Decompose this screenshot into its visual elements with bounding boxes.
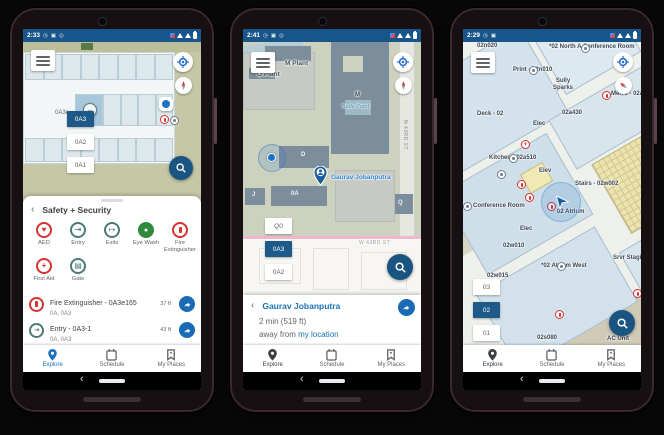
status-time: 2:29 <box>467 32 480 39</box>
sheet-title: Gaurav Jobanputra <box>262 301 340 311</box>
street-label-vertical: N 43RD ST <box>402 120 408 150</box>
battery-icon <box>413 32 417 39</box>
away-text: away from my location <box>259 330 339 339</box>
entry-icon: ⇥ <box>70 222 86 238</box>
speaker-grille <box>83 397 141 402</box>
directions-icon <box>402 303 411 312</box>
home-pill[interactable] <box>99 379 125 383</box>
camera-dot <box>98 17 107 26</box>
compass-button[interactable] <box>615 77 632 94</box>
floor-chip[interactable]: Q0 <box>265 218 292 234</box>
category-aed[interactable]: ♥AED <box>27 222 61 253</box>
pin-label: Gaurav Jobanputra <box>331 174 391 181</box>
eta-text: 2 min (519 ft) <box>259 317 306 326</box>
fire-extinguisher-poi[interactable] <box>160 115 169 124</box>
speaker-grille <box>303 397 361 402</box>
result-row[interactable]: Fire Extinguisher - 0A3e165 0A, 0A3 37 f… <box>29 292 195 316</box>
android-nav: ‹ <box>463 372 641 390</box>
conference-poi[interactable] <box>581 44 590 53</box>
wifi-icon <box>397 33 403 38</box>
category-row-1: ♥AED ⇥Entry ↦Exits ●Eye Wash Fire Exting… <box>27 222 197 253</box>
bookmark-icon <box>166 349 176 361</box>
sheet-title: Safety + Security <box>42 205 111 215</box>
bottom-sheet[interactable]: ‹ Safety + Security ♥AED ⇥Entry ↦Exits ●… <box>23 196 201 345</box>
result-subtitle: 0A, 0A3 <box>50 311 154 317</box>
tab-schedule[interactable]: Schedule <box>522 345 581 372</box>
phone-3: 2:29 ◷ ▣ <box>450 8 654 412</box>
person-pin[interactable] <box>313 166 328 186</box>
status-bar: 2:29 ◷ ▣ <box>463 29 641 42</box>
notification-icon <box>170 33 175 38</box>
map-label: 02a430 <box>562 110 582 116</box>
bottom-nav: Explore Schedule My Places <box>463 345 641 372</box>
print-poi[interactable] <box>529 66 538 75</box>
street-label: W 43RD ST <box>359 240 390 246</box>
map-label: M Plant <box>285 60 308 67</box>
locate-button[interactable] <box>613 52 633 72</box>
floor-chip[interactable]: 01 <box>473 325 500 341</box>
map-pin-icon <box>487 349 498 361</box>
result-title: Fire Extinguisher - 0A3e165 <box>50 300 137 307</box>
result-subtitle: 0A, 0A3 <box>50 337 154 343</box>
search-icon <box>616 317 629 330</box>
map-pin-icon <box>47 349 58 361</box>
camera-dot <box>538 17 547 26</box>
map-label: Srvr Staging <box>613 255 641 261</box>
menu-button[interactable] <box>471 52 495 73</box>
map-label: Elec <box>533 121 545 127</box>
location-icon: ◎ <box>279 33 284 39</box>
atrium-west-poi[interactable] <box>557 262 566 271</box>
alarm-icon: ◷ <box>263 33 268 39</box>
fire-extinguisher-icon <box>172 222 188 238</box>
calendar-icon <box>106 349 117 361</box>
tab-my-places[interactable]: My Places <box>142 345 201 372</box>
courtyard <box>343 56 363 72</box>
alarm-icon: ◷ <box>43 33 48 39</box>
category-entry[interactable]: ⇥Entry <box>61 222 95 253</box>
search-fab[interactable] <box>387 254 413 280</box>
android-nav: ‹ <box>243 372 421 390</box>
search-fab[interactable] <box>169 156 193 180</box>
first-aid-poi[interactable]: + <box>521 140 530 149</box>
notification-icon <box>390 33 395 38</box>
result-row[interactable]: ⇥ Entry - 0A3-1 0A, 0A3 43 ft <box>29 318 195 342</box>
signal-icon <box>185 33 191 38</box>
phone-1-screen: 2:33 ◷ ▣ ◎ <box>23 29 201 390</box>
fire-extinguisher-poi[interactable] <box>517 180 526 189</box>
directions-button[interactable] <box>179 296 195 312</box>
floor-chip-active[interactable]: 02 <box>473 302 500 318</box>
map-label: Deck - 02 <box>477 111 503 117</box>
compass-needle-icon <box>178 80 189 91</box>
back-icon[interactable]: ‹ <box>31 205 34 215</box>
gps-target-icon <box>617 56 629 68</box>
tab-explore[interactable]: Explore <box>243 345 302 372</box>
calendar-icon <box>546 349 557 361</box>
notification-icon <box>610 33 615 38</box>
menu-button[interactable] <box>31 50 55 71</box>
floor-chip-active[interactable]: 0A3 <box>67 111 94 127</box>
tab-my-places[interactable]: My Places <box>362 345 421 372</box>
map-view[interactable]: M Plant O Plant M Turtle Pond D 0A J Q W… <box>243 42 421 345</box>
tab-my-places[interactable]: My Places <box>582 345 641 372</box>
map-label: 02n020 <box>477 43 497 49</box>
signal-icon <box>405 33 411 38</box>
floor-selector: 03 02 01 <box>473 279 500 341</box>
locate-button[interactable] <box>173 52 193 72</box>
map-label-water: Turtle Pond <box>341 104 369 110</box>
screenshot-icon: ▣ <box>51 33 56 39</box>
category-fire-extinguisher[interactable]: Fire Extinguisher <box>163 222 197 253</box>
fire-extinguisher-poi[interactable] <box>525 193 534 202</box>
floor-chip[interactable]: 03 <box>473 279 500 295</box>
map-label: 02s080 <box>537 335 557 341</box>
aed-icon: ♥ <box>36 222 52 238</box>
screenshot-icon: ▣ <box>491 33 496 39</box>
gear-icon <box>170 116 179 125</box>
room-row-bottom <box>25 138 173 162</box>
map-label: Q <box>398 200 403 206</box>
floor-chip[interactable]: 0A2 <box>265 264 292 280</box>
compass-button[interactable] <box>175 77 192 94</box>
speaker-grille <box>523 397 581 402</box>
back-button[interactable]: ‹ <box>520 373 524 385</box>
map-label: Sully Sparks <box>551 78 575 92</box>
canvas: 2:33 ◷ ▣ ◎ <box>0 0 664 435</box>
search-icon <box>394 261 407 274</box>
category-row-2: +First Aid ▤Gate <box>27 258 197 289</box>
map-label: Conference Room <box>473 203 525 209</box>
battery-icon <box>633 32 637 39</box>
gps-target-icon <box>177 56 189 68</box>
tab-explore[interactable]: Explore <box>23 345 82 372</box>
back-button[interactable]: ‹ <box>300 373 304 385</box>
bookmark-icon <box>386 349 396 361</box>
bottom-nav: Explore Schedule My Places <box>243 345 421 372</box>
floor-selector: 0A3 0A2 0A1 <box>67 111 94 173</box>
category-exits[interactable]: ↦Exits <box>95 222 129 253</box>
fire-extinguisher-poi[interactable] <box>555 310 564 319</box>
screenshot-icon: ▣ <box>271 33 276 39</box>
result-distance: 43 ft <box>160 327 171 333</box>
status-bar: 2:33 ◷ ▣ ◎ <box>23 29 201 42</box>
directions-button[interactable] <box>398 299 415 316</box>
floor-chip[interactable]: 0A2 <box>67 134 94 150</box>
tab-schedule[interactable]: Schedule <box>302 345 361 372</box>
restroom-poi[interactable] <box>602 91 611 100</box>
compass-needle-icon <box>616 78 631 93</box>
search-icon <box>175 162 187 174</box>
eye-wash-icon: ● <box>138 222 154 238</box>
map-pin-icon <box>267 349 278 361</box>
status-time: 2:33 <box>27 32 40 39</box>
map-label: *02 North A Conference Room <box>549 44 635 50</box>
map-planter <box>81 43 93 50</box>
drag-handle[interactable] <box>101 199 123 202</box>
map-label: AC Unit <box>607 336 629 342</box>
fire-extinguisher-poi[interactable] <box>633 289 641 298</box>
category-gate[interactable]: ▤Gate <box>61 258 95 289</box>
my-location-link[interactable]: my location <box>298 330 338 339</box>
building-0a <box>271 186 327 206</box>
calendar-icon <box>326 349 337 361</box>
locate-button[interactable] <box>393 52 413 72</box>
category-first-aid[interactable]: +First Aid <box>27 258 61 289</box>
floor-chip[interactable]: 0A1 <box>67 157 94 173</box>
kitchen-poi[interactable] <box>509 154 518 163</box>
map-label: Elev <box>539 168 551 174</box>
selected-poi-marker[interactable] <box>159 97 173 111</box>
directions-icon <box>183 326 192 335</box>
map-label: Elec <box>520 226 532 232</box>
result-title: Entry - 0A3-1 <box>50 326 91 333</box>
result-distance: 37 ft <box>160 301 171 307</box>
map-view[interactable]: − 0A3e <box>23 42 201 345</box>
map-label: 02w010 <box>503 243 524 249</box>
status-bar: 2:41 ◷ ▣ ◎ <box>243 29 421 42</box>
compass-button[interactable] <box>395 77 412 94</box>
battery-icon <box>193 32 197 39</box>
gate-icon: ▤ <box>70 258 86 274</box>
blue-location-dot <box>267 153 276 162</box>
bottom-sheet[interactable]: ‹ Gaurav Jobanputra 2 min (519 ft) away … <box>243 295 421 345</box>
signal-icon <box>625 33 631 38</box>
map-view[interactable]: 02n020 *02 North A Conference Room Print… <box>463 42 641 345</box>
back-icon[interactable]: ‹ <box>251 301 254 311</box>
street-block <box>313 248 349 290</box>
map-label: D <box>301 152 305 158</box>
bookmark-icon <box>606 349 616 361</box>
phone-2: 2:41 ◷ ▣ ◎ <box>230 8 434 412</box>
status-time: 2:41 <box>247 32 260 39</box>
floor-chip-active[interactable]: 0A3 <box>265 241 292 257</box>
phone-3-screen: 2:29 ◷ ▣ <box>463 29 641 390</box>
floor-selector: Q0 0A3 0A2 <box>265 218 292 280</box>
back-button[interactable]: ‹ <box>80 373 84 385</box>
fire-extinguisher-icon <box>29 297 44 312</box>
compass-needle-icon <box>398 80 409 91</box>
android-nav: ‹ <box>23 372 201 390</box>
alarm-icon: ◷ <box>483 33 488 39</box>
directions-icon <box>183 300 192 309</box>
location-icon: ◎ <box>59 33 64 39</box>
phone-1: 2:33 ◷ ▣ ◎ <box>10 8 214 412</box>
camera-dot <box>318 17 327 26</box>
wifi-icon <box>177 33 183 38</box>
conference-room-poi[interactable] <box>463 202 472 211</box>
map-label: Stairs - 02w002 <box>575 181 618 187</box>
bottom-nav: Explore Schedule My Places <box>23 345 201 372</box>
menu-button[interactable] <box>251 52 275 73</box>
exits-icon: ↦ <box>104 222 120 238</box>
home-pill[interactable] <box>539 379 565 383</box>
tab-explore[interactable]: Explore <box>463 345 522 372</box>
map-label: 0A <box>291 191 299 197</box>
directions-button[interactable] <box>179 322 195 338</box>
wifi-icon <box>617 33 623 38</box>
map-label: J <box>252 192 255 198</box>
map-label: M <box>355 92 360 98</box>
category-eye-wash[interactable]: ●Eye Wash <box>129 222 163 253</box>
person-poi[interactable] <box>497 170 506 179</box>
sheet-header: ‹ Safety + Security <box>31 205 111 215</box>
gps-target-icon <box>397 56 409 68</box>
home-pill[interactable] <box>319 379 345 383</box>
first-aid-icon: + <box>36 258 52 274</box>
sheet-header: ‹ Gaurav Jobanputra <box>251 301 340 311</box>
entry-icon: ⇥ <box>29 323 44 338</box>
phone-2-screen: 2:41 ◷ ▣ ◎ <box>243 29 421 390</box>
search-fab[interactable] <box>609 310 635 336</box>
tab-schedule[interactable]: Schedule <box>82 345 141 372</box>
